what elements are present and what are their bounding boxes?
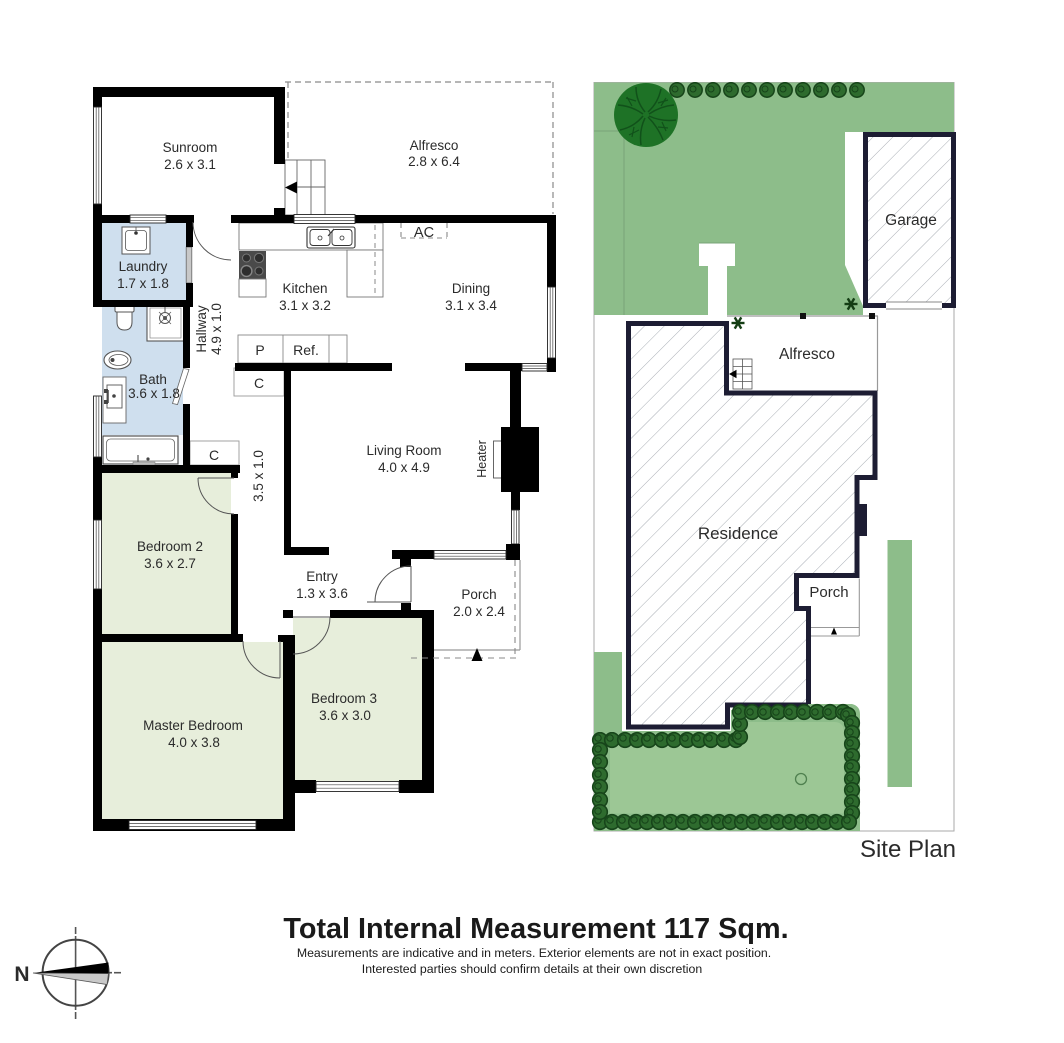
svg-text:Alfresco: Alfresco	[779, 346, 835, 363]
svg-text:Kitchen: Kitchen	[282, 281, 327, 296]
svg-text:Residence: Residence	[698, 524, 778, 543]
svg-text:3.1 x 3.2: 3.1 x 3.2	[279, 298, 331, 313]
svg-text:N: N	[14, 963, 29, 986]
svg-text:Bath: Bath	[139, 372, 167, 387]
svg-text:1.3 x 3.6: 1.3 x 3.6	[296, 586, 348, 601]
svg-text:3.5 x 1.0: 3.5 x 1.0	[251, 450, 266, 502]
svg-text:Ref.: Ref.	[293, 342, 319, 358]
svg-text:C: C	[254, 375, 264, 391]
svg-text:AC: AC	[414, 225, 434, 241]
svg-text:Laundry: Laundry	[119, 259, 168, 274]
svg-text:Heater: Heater	[475, 440, 489, 478]
svg-text:Total Internal Measurement 117: Total Internal Measurement 117 Sqm.	[283, 913, 788, 945]
svg-text:Bedroom 3: Bedroom 3	[311, 691, 377, 706]
svg-text:2.8 x 6.4: 2.8 x 6.4	[408, 154, 460, 169]
svg-text:4.0 x 3.8: 4.0 x 3.8	[168, 735, 220, 750]
svg-text:Living Room: Living Room	[366, 443, 441, 458]
svg-text:2.6 x 3.1: 2.6 x 3.1	[164, 157, 216, 172]
svg-text:Alfresco: Alfresco	[410, 138, 459, 153]
svg-text:C: C	[209, 447, 219, 463]
svg-text:Sunroom: Sunroom	[163, 140, 218, 155]
svg-text:Master Bedroom: Master Bedroom	[143, 718, 243, 733]
svg-text:Bedroom 2: Bedroom 2	[137, 539, 203, 554]
svg-text:Porch: Porch	[809, 584, 848, 601]
svg-text:Hallway: Hallway	[194, 305, 209, 353]
svg-text:Measurements are indicative an: Measurements are indicative and in meter…	[297, 946, 771, 960]
svg-text:4.9 x 1.0: 4.9 x 1.0	[209, 303, 224, 355]
svg-text:Site Plan: Site Plan	[860, 836, 956, 863]
svg-text:2.0 x 2.4: 2.0 x 2.4	[453, 604, 505, 619]
svg-text:Dining: Dining	[452, 281, 490, 296]
svg-text:Interested parties should conf: Interested parties should confirm detail…	[362, 962, 703, 976]
svg-text:3.6 x 3.0: 3.6 x 3.0	[319, 708, 371, 723]
svg-text:3.6 x 2.7: 3.6 x 2.7	[144, 556, 196, 571]
svg-text:3.6 x 1.8: 3.6 x 1.8	[128, 386, 180, 401]
svg-text:3.1 x 3.4: 3.1 x 3.4	[445, 298, 497, 313]
svg-text:4.0 x 4.9: 4.0 x 4.9	[378, 460, 430, 475]
svg-text:Porch: Porch	[461, 587, 496, 602]
svg-text:P: P	[255, 342, 264, 358]
svg-text:Garage: Garage	[885, 212, 937, 229]
svg-text:Entry: Entry	[306, 569, 338, 584]
svg-text:1.7 x 1.8: 1.7 x 1.8	[117, 276, 169, 291]
